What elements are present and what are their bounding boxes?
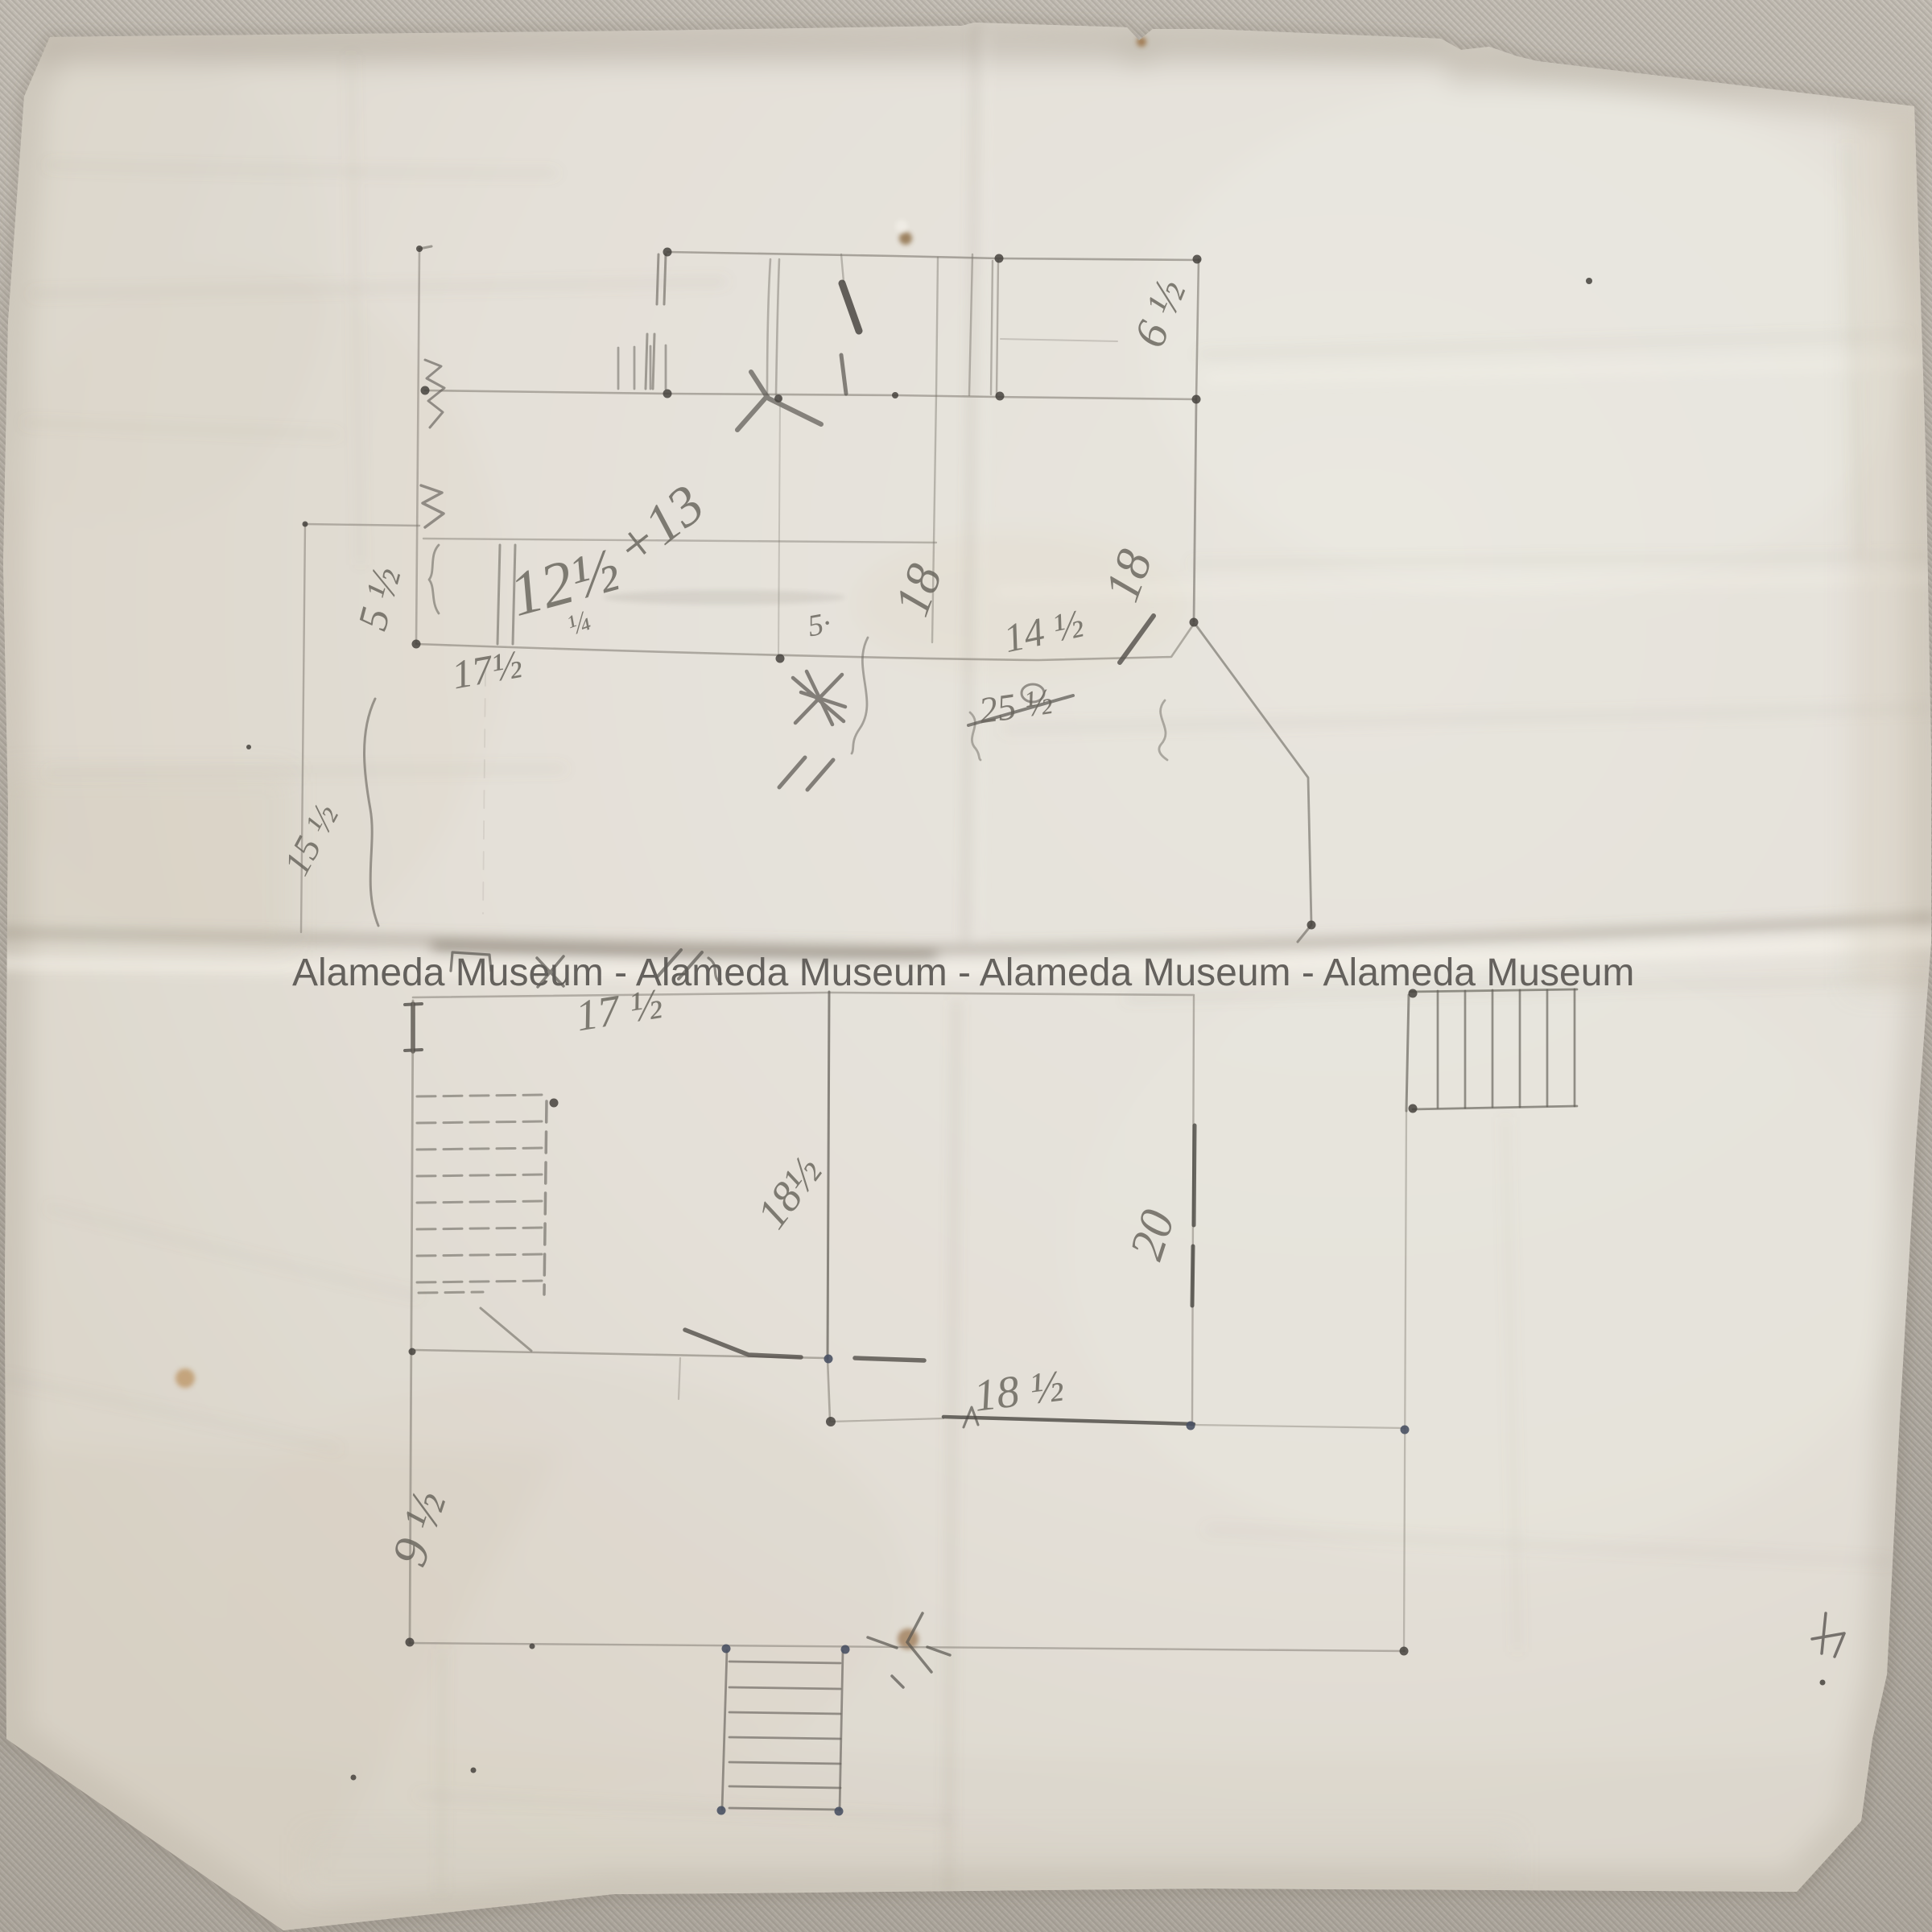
svg-text:Alameda Museum - Alameda Museu: Alameda Museum - Alameda Museum - Alamed…	[292, 952, 1634, 994]
